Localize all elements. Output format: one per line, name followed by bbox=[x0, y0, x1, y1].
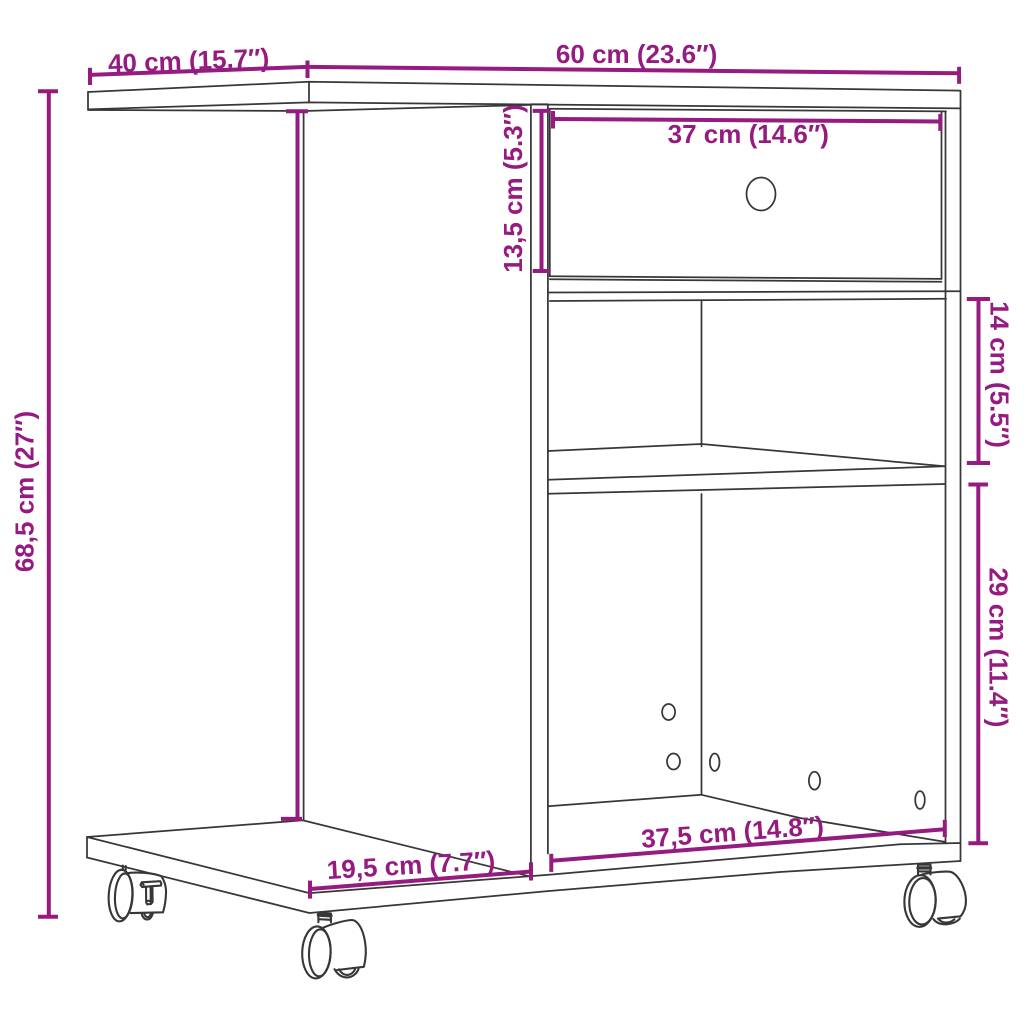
svg-text:29 cm (11.4″): 29 cm (11.4″) bbox=[984, 568, 1014, 728]
svg-text:60 cm (23.6″): 60 cm (23.6″) bbox=[556, 39, 717, 69]
svg-text:37 cm (14.6″): 37 cm (14.6″) bbox=[668, 119, 829, 149]
svg-text:19,5 cm (7.7″): 19,5 cm (7.7″) bbox=[326, 845, 496, 885]
svg-text:13,5 cm (5.3″): 13,5 cm (5.3″) bbox=[498, 104, 528, 273]
svg-text:40 cm (15.7″): 40 cm (15.7″) bbox=[107, 42, 269, 78]
svg-text:14 cm (5.5″): 14 cm (5.5″) bbox=[985, 301, 1015, 448]
svg-text:68,5 cm (27″): 68,5 cm (27″) bbox=[10, 411, 40, 572]
